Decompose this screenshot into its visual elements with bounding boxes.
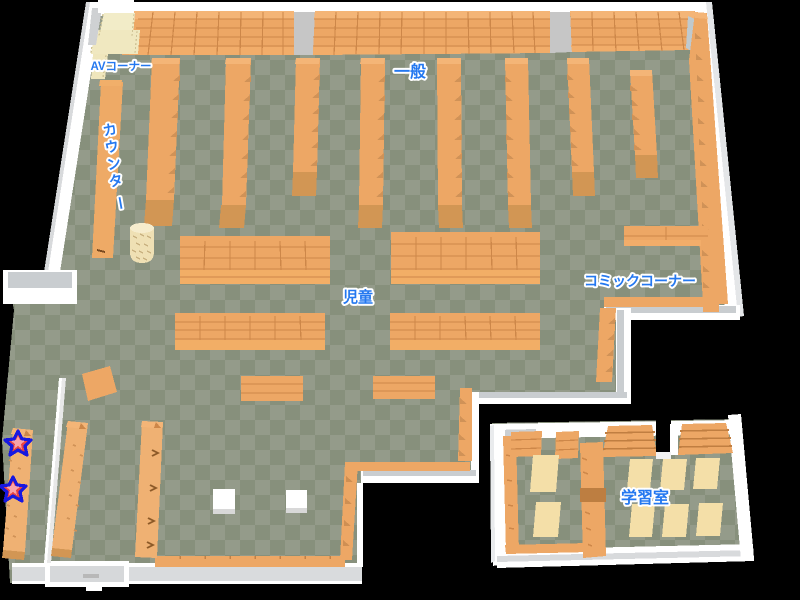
svg-text:ー: ー [111,195,129,212]
svg-text:学習室: 学習室 [621,488,669,507]
svg-text:コミックコーナー: コミックコーナー [584,273,696,289]
svg-text:児童: 児童 [342,288,373,306]
svg-text:AVコーナー: AVコーナー [90,60,151,73]
svg-text:一般: 一般 [394,62,426,81]
